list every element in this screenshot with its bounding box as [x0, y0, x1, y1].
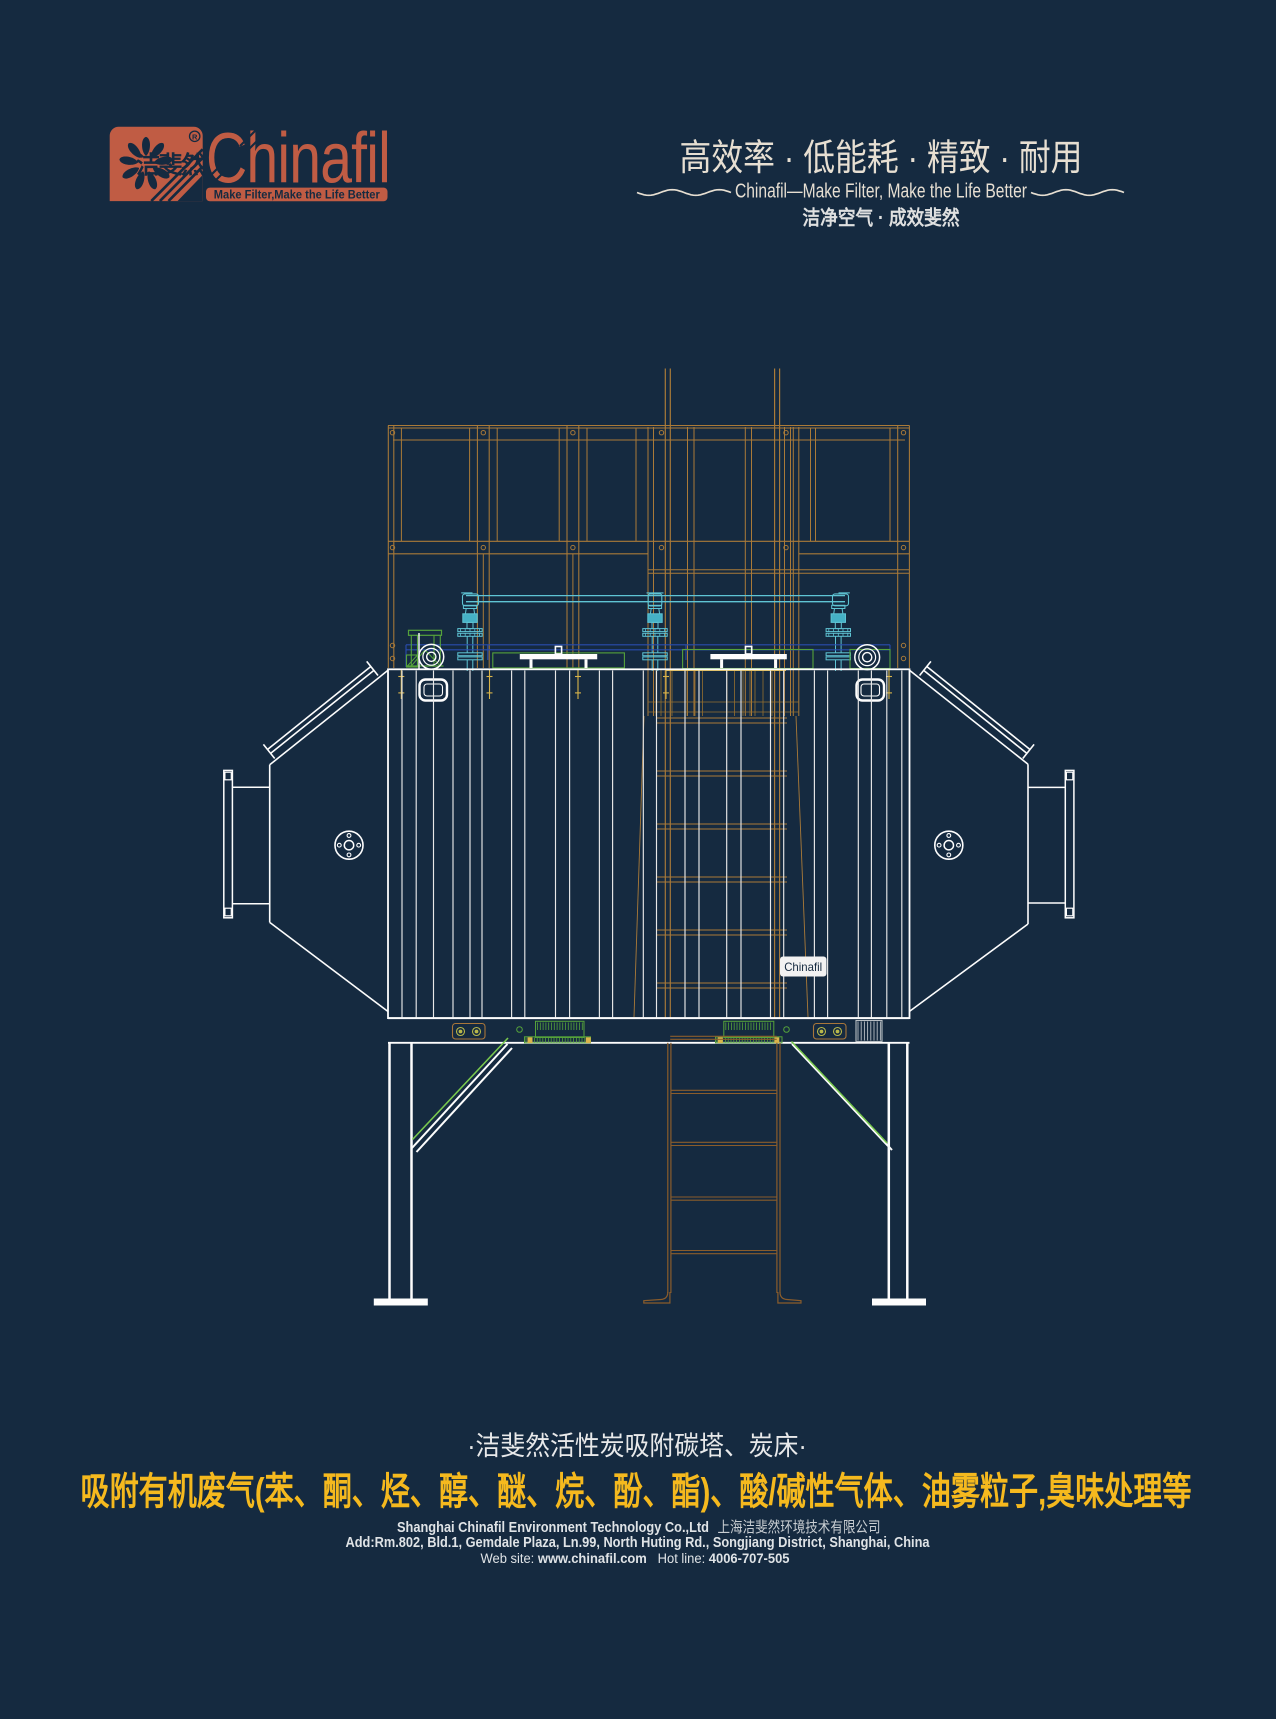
svg-text:Shanghai Chinafil Environment: Shanghai Chinafil Environment Technology… [397, 1520, 709, 1536]
svg-text:Make Filter,Make the Life Bett: Make Filter,Make the Life Better [214, 189, 381, 201]
svg-text:Chinafil: Chinafil [784, 960, 822, 974]
svg-text:上海洁斐然环境技术有限公司: 上海洁斐然环境技术有限公司 [718, 1518, 881, 1536]
svg-text:高效率 · 低能耗 · 精致 · 耐用: 高效率 · 低能耗 · 精致 · 耐用 [680, 137, 1083, 178]
svg-text:洁斐然: 洁斐然 [136, 151, 205, 179]
svg-text:·洁斐然活性炭吸附碳塔、炭床·: ·洁斐然活性炭吸附碳塔、炭床· [467, 1431, 807, 1461]
svg-text:吸附有机废气(苯、酮、烃、醇、醚、烷、酚、酯)、酸/碱性气体: 吸附有机废气(苯、酮、烃、醇、醚、烷、酚、酯)、酸/碱性气体、油雾粒子,臭味处理… [81, 1472, 1192, 1514]
svg-text:Chinafil—Make Filter, Make the: Chinafil—Make Filter, Make the Life Bett… [735, 180, 1027, 203]
svg-text:R: R [192, 132, 198, 141]
svg-text:Add:Rm.802, Bld.1, Gemdale Pla: Add:Rm.802, Bld.1, Gemdale Plaza, Ln.99,… [346, 1535, 931, 1551]
svg-text:Chinafil: Chinafil [206, 120, 390, 199]
svg-text:Web site: www.chinafil.com H: Web site: www.chinafil.com Hot line: 400… [481, 1551, 790, 1567]
svg-text:洁净空气 · 成效斐然: 洁净空气 · 成效斐然 [803, 206, 960, 230]
